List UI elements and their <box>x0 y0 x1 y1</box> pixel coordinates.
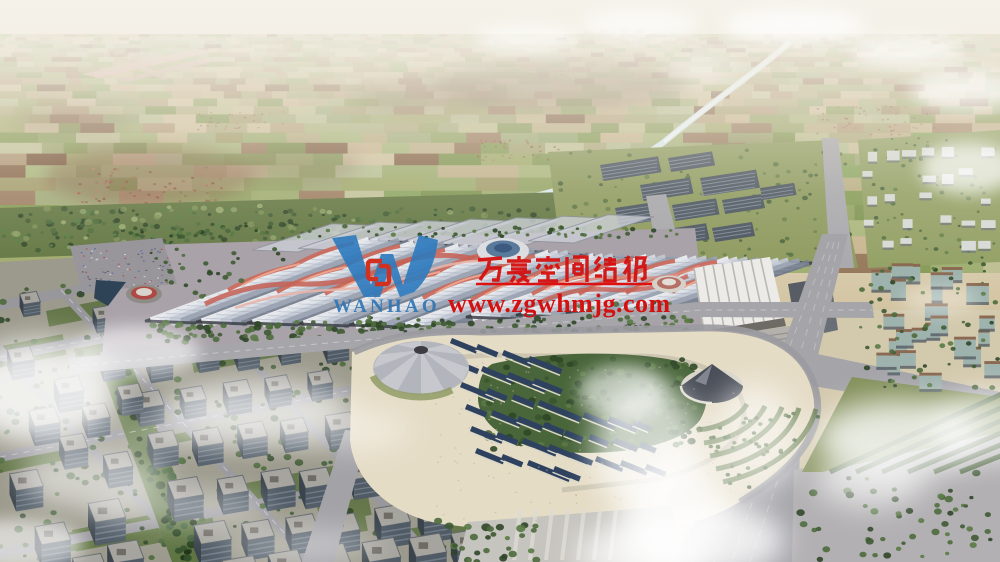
svg-text:WANHAO: WANHAO <box>333 296 440 317</box>
svg-text:www.zgwhmjg.com: www.zgwhmjg.com <box>448 289 671 318</box>
